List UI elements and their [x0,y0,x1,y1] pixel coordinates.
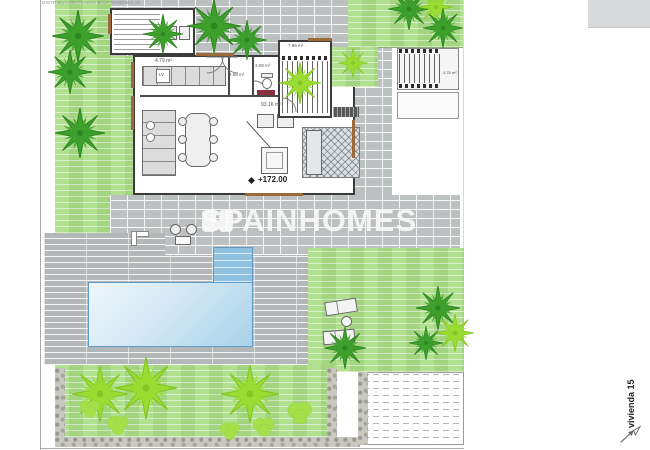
living-area-label: 93.16 m² [261,103,281,108]
exterior-stair-dash [399,84,441,88]
garden-wall-bottom [55,437,360,447]
wc-area-label: 3.08 m² [255,64,270,69]
watermark-brand: SPAINHOMES [201,203,417,239]
sheet-number-label: vivienda 15 [626,379,636,428]
pool-steps [213,247,253,283]
window-frame [108,14,111,34]
appliance-box [179,26,190,40]
plot-boundary-bottom [40,448,464,449]
plot-boundary-left [40,0,41,450]
ramp-area [358,372,464,445]
level-mark-icon [248,177,255,184]
lawn-left-top [55,0,111,58]
utility-area-label: 4.79 m² [155,59,172,64]
north-arrow-icon [616,424,642,446]
swimming-pool [88,282,253,347]
washer-label: LV [159,73,164,78]
neighbour-block [588,0,650,28]
sheet-header-note: DISTRIBUCIÓN PLANTA BAJA VIVIENDA 15 [42,0,140,5]
toilet-bowl [262,78,272,89]
side-table [341,316,352,327]
patio-chair [186,224,197,235]
exterior-stair-dash [399,49,441,53]
level-mark-value: +172.00 [258,176,287,184]
garden-wall-left [55,368,65,440]
lawn-top-right [348,0,463,48]
stairs-area-label: 7.86 m² [288,44,303,49]
sun-lounger [322,329,355,346]
garden-bottom [55,365,337,437]
level-mark: +172.00 [249,176,309,186]
wc-mat [257,90,275,95]
exterior-ramp [397,92,459,119]
hall-area-label: 2.58 m² [229,73,244,78]
outdoor-bench [131,231,137,246]
spainhomes-watermark: SPAINHOMES [201,206,235,236]
patio-table [175,236,191,245]
door-arcs [133,40,363,200]
floor-plan-canvas: SPAINHOMES DISTRIBUCIÓN PLANTA BAJA VIVI… [0,0,650,450]
garden-wall-right [327,368,337,440]
exterior-stair-treads [399,54,441,83]
patio-chair [170,224,181,235]
ramp-wall [358,372,368,445]
appliance-box [166,26,177,40]
exterior-stair-label: 4.78 m² [443,71,457,75]
